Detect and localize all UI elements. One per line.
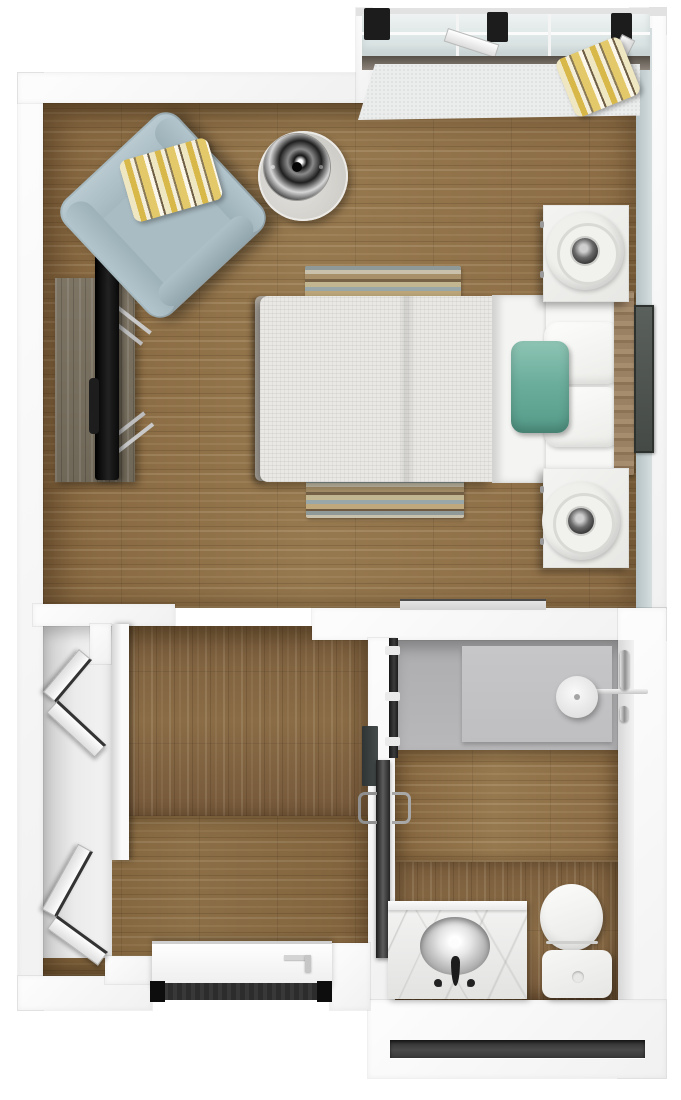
bath-south-wall: [368, 1000, 666, 1078]
entry-mat-end-left: [150, 981, 165, 1002]
glass-hinge-1: [385, 646, 400, 655]
window-post-1: [364, 8, 390, 40]
mid-wall-right: [312, 608, 666, 640]
floor-plan: [0, 0, 681, 1100]
baseboard-vent: [390, 1040, 645, 1058]
table-lamp-top-finial: [572, 238, 598, 264]
closet-return-wall: [105, 956, 152, 984]
entry-mat-end-right: [317, 981, 332, 1002]
entry-corner-wall: [330, 943, 370, 1010]
north-wall: [18, 73, 362, 103]
glass-hinge-2: [385, 692, 400, 701]
door-pull-bath-side: [392, 792, 411, 824]
faucet-handle-right: [467, 979, 475, 987]
vanity-backsplash: [388, 901, 527, 910]
bedroom-door-sill: [400, 599, 546, 610]
table-lamp-bottom-finial: [568, 508, 594, 534]
door-pull-hall-side: [358, 792, 377, 824]
sink-drain-highlight: [450, 938, 459, 947]
closet-partition: [112, 624, 129, 860]
entry-mat: [150, 983, 332, 1000]
mid-wall-left-stem: [90, 624, 111, 664]
toilet-lid-seam: [546, 941, 598, 944]
entry-door-handle-post: [305, 955, 311, 972]
glass-hinge-3: [385, 737, 400, 746]
shower-head-pivot: [574, 694, 580, 700]
grab-bar-vertical: [620, 650, 629, 690]
floor-lamp-finial: [292, 162, 302, 172]
headboard-artwork: [634, 305, 654, 453]
window-post-2: [487, 12, 508, 42]
rug-head: [306, 479, 464, 518]
tv-bracket: [89, 378, 99, 434]
teal-pillow: [511, 341, 569, 433]
tv: [95, 252, 119, 480]
shower-arm: [592, 689, 648, 694]
mid-wall-left: [33, 604, 175, 626]
faucet-handle-left: [434, 979, 442, 987]
bath-east-wall-face: [618, 640, 634, 1060]
toilet-flush-button: [572, 971, 584, 983]
bed-duvet: [260, 296, 492, 482]
window-mullion-v2: [548, 14, 551, 58]
bath-floor-upper: [394, 748, 618, 862]
headboard: [614, 291, 634, 475]
grab-bar-bracket: [620, 706, 628, 722]
west-wall: [18, 73, 43, 1010]
